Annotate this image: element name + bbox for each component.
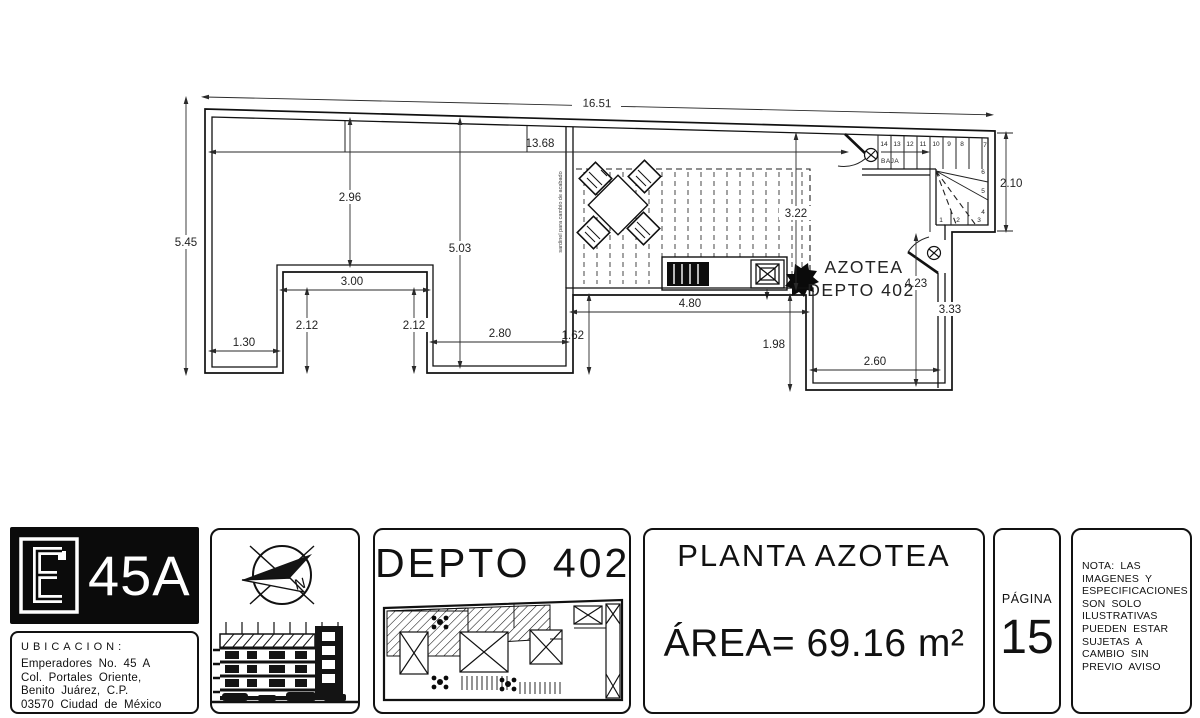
- svg-text:9: 9: [947, 141, 951, 148]
- unit-plan-thumbnail: [378, 594, 628, 708]
- svg-text:5: 5: [981, 188, 985, 195]
- logo-panel: 45A: [10, 527, 199, 624]
- location-line: Emperadores No. 45 A: [21, 658, 188, 672]
- wall-joints: [345, 121, 527, 152]
- stair-numbers: 14 13 12 11 10 9 8 7 6 5 4 3 2 1: [880, 141, 987, 224]
- dim-162: 1.62: [562, 330, 584, 342]
- compass-and-elevation: N: [212, 530, 358, 712]
- dim-503: 5.03: [449, 243, 471, 255]
- nota-line: CAMBIO SIN: [1082, 648, 1182, 661]
- dim-300: 3.00: [341, 276, 363, 288]
- sheet-title-panel: PLANTA AZOTEA ÁREA= 69.16 m²: [643, 528, 985, 714]
- nota-line: ILUSTRATIVAS: [1082, 610, 1182, 623]
- svg-text:8: 8: [960, 141, 964, 148]
- nota-panel: NOTA: LAS IMAGENES Y ESPECIFICACIONES SO…: [1071, 528, 1192, 714]
- logo-text: 45A: [88, 543, 191, 608]
- dim-260: 2.60: [864, 356, 886, 368]
- location-line: Col. Portales Oriente,: [21, 672, 188, 686]
- dim-210: 2.10: [1000, 178, 1022, 190]
- svg-text:14: 14: [880, 141, 888, 148]
- unit-title: DEPTO 402: [375, 540, 629, 587]
- doors: [838, 134, 938, 273]
- dim-322: 3.22: [785, 208, 807, 220]
- room-label-line1: AZOTEA: [824, 257, 903, 277]
- dim-280: 2.80: [489, 328, 511, 340]
- building-elevation: [212, 622, 358, 702]
- svg-text:12: 12: [906, 141, 914, 148]
- dim-198: 1.98: [763, 339, 785, 351]
- nota-line: PREVIO AVISO: [1082, 661, 1182, 674]
- dim-left-height: 5.45: [175, 237, 197, 249]
- svg-text:11: 11: [920, 141, 927, 148]
- svg-text:10: 10: [932, 141, 940, 148]
- curb-note: sardinel para cambio de acabado: [558, 171, 564, 252]
- svg-text:2: 2: [956, 217, 960, 224]
- location-heading: UBICACION:: [21, 641, 188, 653]
- dim-interior-width: 13.68: [526, 138, 555, 150]
- stair-treads: [878, 135, 982, 232]
- grill-counter: [662, 257, 787, 296]
- location-line: Benito Juárez, C.P.: [21, 685, 188, 699]
- location-line: 03570 Ciudad de México: [21, 699, 188, 713]
- dim-130: 1.30: [233, 337, 255, 349]
- sheet-area: ÁREA= 69.16 m²: [645, 622, 983, 666]
- staircase: BAJA 14 13 12 11 10 9 8 7 6 5 4 3 2 1: [862, 135, 988, 232]
- dim-212-right: 2.12: [403, 320, 425, 332]
- drawing-sheet: BAJA 14 13 12 11 10 9 8 7 6 5 4 3 2 1: [0, 0, 1200, 718]
- location-panel: UBICACION: Emperadores No. 45 A Col. Por…: [10, 631, 199, 714]
- svg-text:4: 4: [981, 209, 985, 216]
- svg-text:3: 3: [977, 217, 981, 224]
- north-compass-icon: N: [242, 546, 314, 604]
- dim-212-left: 2.12: [296, 320, 318, 332]
- compass-elevation-panel: N: [210, 528, 360, 714]
- dim-333: 3.33: [939, 304, 961, 316]
- nota-line: SUJETAS A: [1082, 636, 1182, 649]
- terrace-table-set: [577, 160, 661, 249]
- svg-text:7: 7: [983, 142, 987, 149]
- roof-plan-drawing: BAJA 14 13 12 11 10 9 8 7 6 5 4 3 2 1: [0, 0, 1200, 500]
- room-label-line2: DEPTO 402: [807, 280, 915, 300]
- svg-text:13: 13: [893, 141, 901, 148]
- svg-text:1: 1: [939, 217, 943, 224]
- page-number: 15: [995, 610, 1059, 665]
- e-logo-icon: [18, 536, 80, 615]
- roof-drains: [865, 149, 941, 260]
- burner: [751, 260, 784, 288]
- page-label: PÁGINA: [995, 592, 1059, 606]
- dim-total-width: 16.51: [582, 98, 611, 111]
- nota-line: IMAGENES Y: [1082, 573, 1182, 586]
- svg-text:6: 6: [981, 169, 985, 176]
- page-panel: PÁGINA 15: [993, 528, 1061, 714]
- nota-line: SON SOLO: [1082, 598, 1182, 611]
- nota-line: ESPECIFICACIONES: [1082, 585, 1182, 598]
- svg-text:N: N: [293, 575, 308, 594]
- stair-baja-label: BAJA: [881, 158, 899, 165]
- nota-line: NOTA: LAS: [1082, 560, 1182, 573]
- dim-480: 4.80: [679, 298, 701, 310]
- nota-line: PUEDEN ESTAR: [1082, 623, 1182, 636]
- unit-panel: DEPTO 402: [373, 528, 631, 714]
- dim-296: 2.96: [339, 192, 361, 204]
- sheet-title: PLANTA AZOTEA: [645, 538, 983, 574]
